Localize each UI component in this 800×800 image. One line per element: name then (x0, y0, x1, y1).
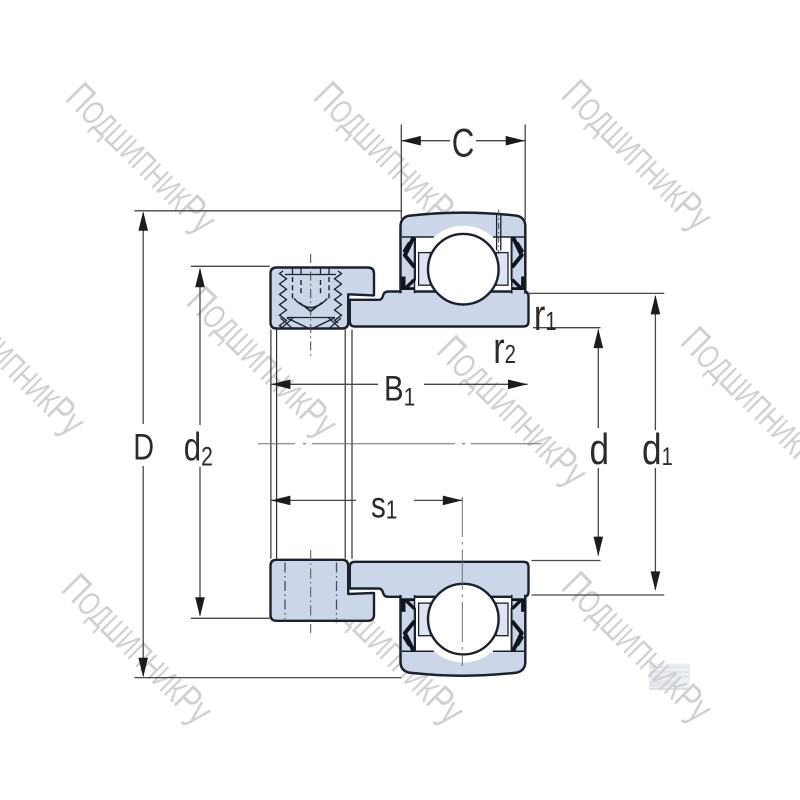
svg-text:d1: d1 (642, 426, 673, 475)
svg-text:ПОДШИПНИКРу: ПОДШИПНИКРу (673, 318, 800, 486)
svg-text:ПОДШИПНИКРу: ПОДШИПНИКРу (58, 74, 226, 242)
svg-text:r2: r2 (493, 324, 516, 373)
svg-text:d: d (590, 426, 610, 475)
svg-text:s1: s1 (371, 485, 397, 526)
svg-text:C: C (452, 121, 475, 166)
svg-text:d2: d2 (184, 425, 213, 472)
svg-text:ПОДШИПНИКРу: ПОДШИПНИКРу (554, 563, 722, 731)
svg-text:r1: r1 (534, 291, 557, 340)
svg-text:ПОДШИПНИКРу: ПОДШИПНИКРу (554, 71, 722, 239)
svg-text:ПОДШИПНИКРу: ПОДШИПНИКРу (54, 565, 222, 733)
svg-text:B1: B1 (384, 369, 415, 411)
svg-text:D: D (133, 427, 154, 468)
svg-text:ПОДШИПНИКРу: ПОДШИПНИКРу (0, 276, 95, 444)
